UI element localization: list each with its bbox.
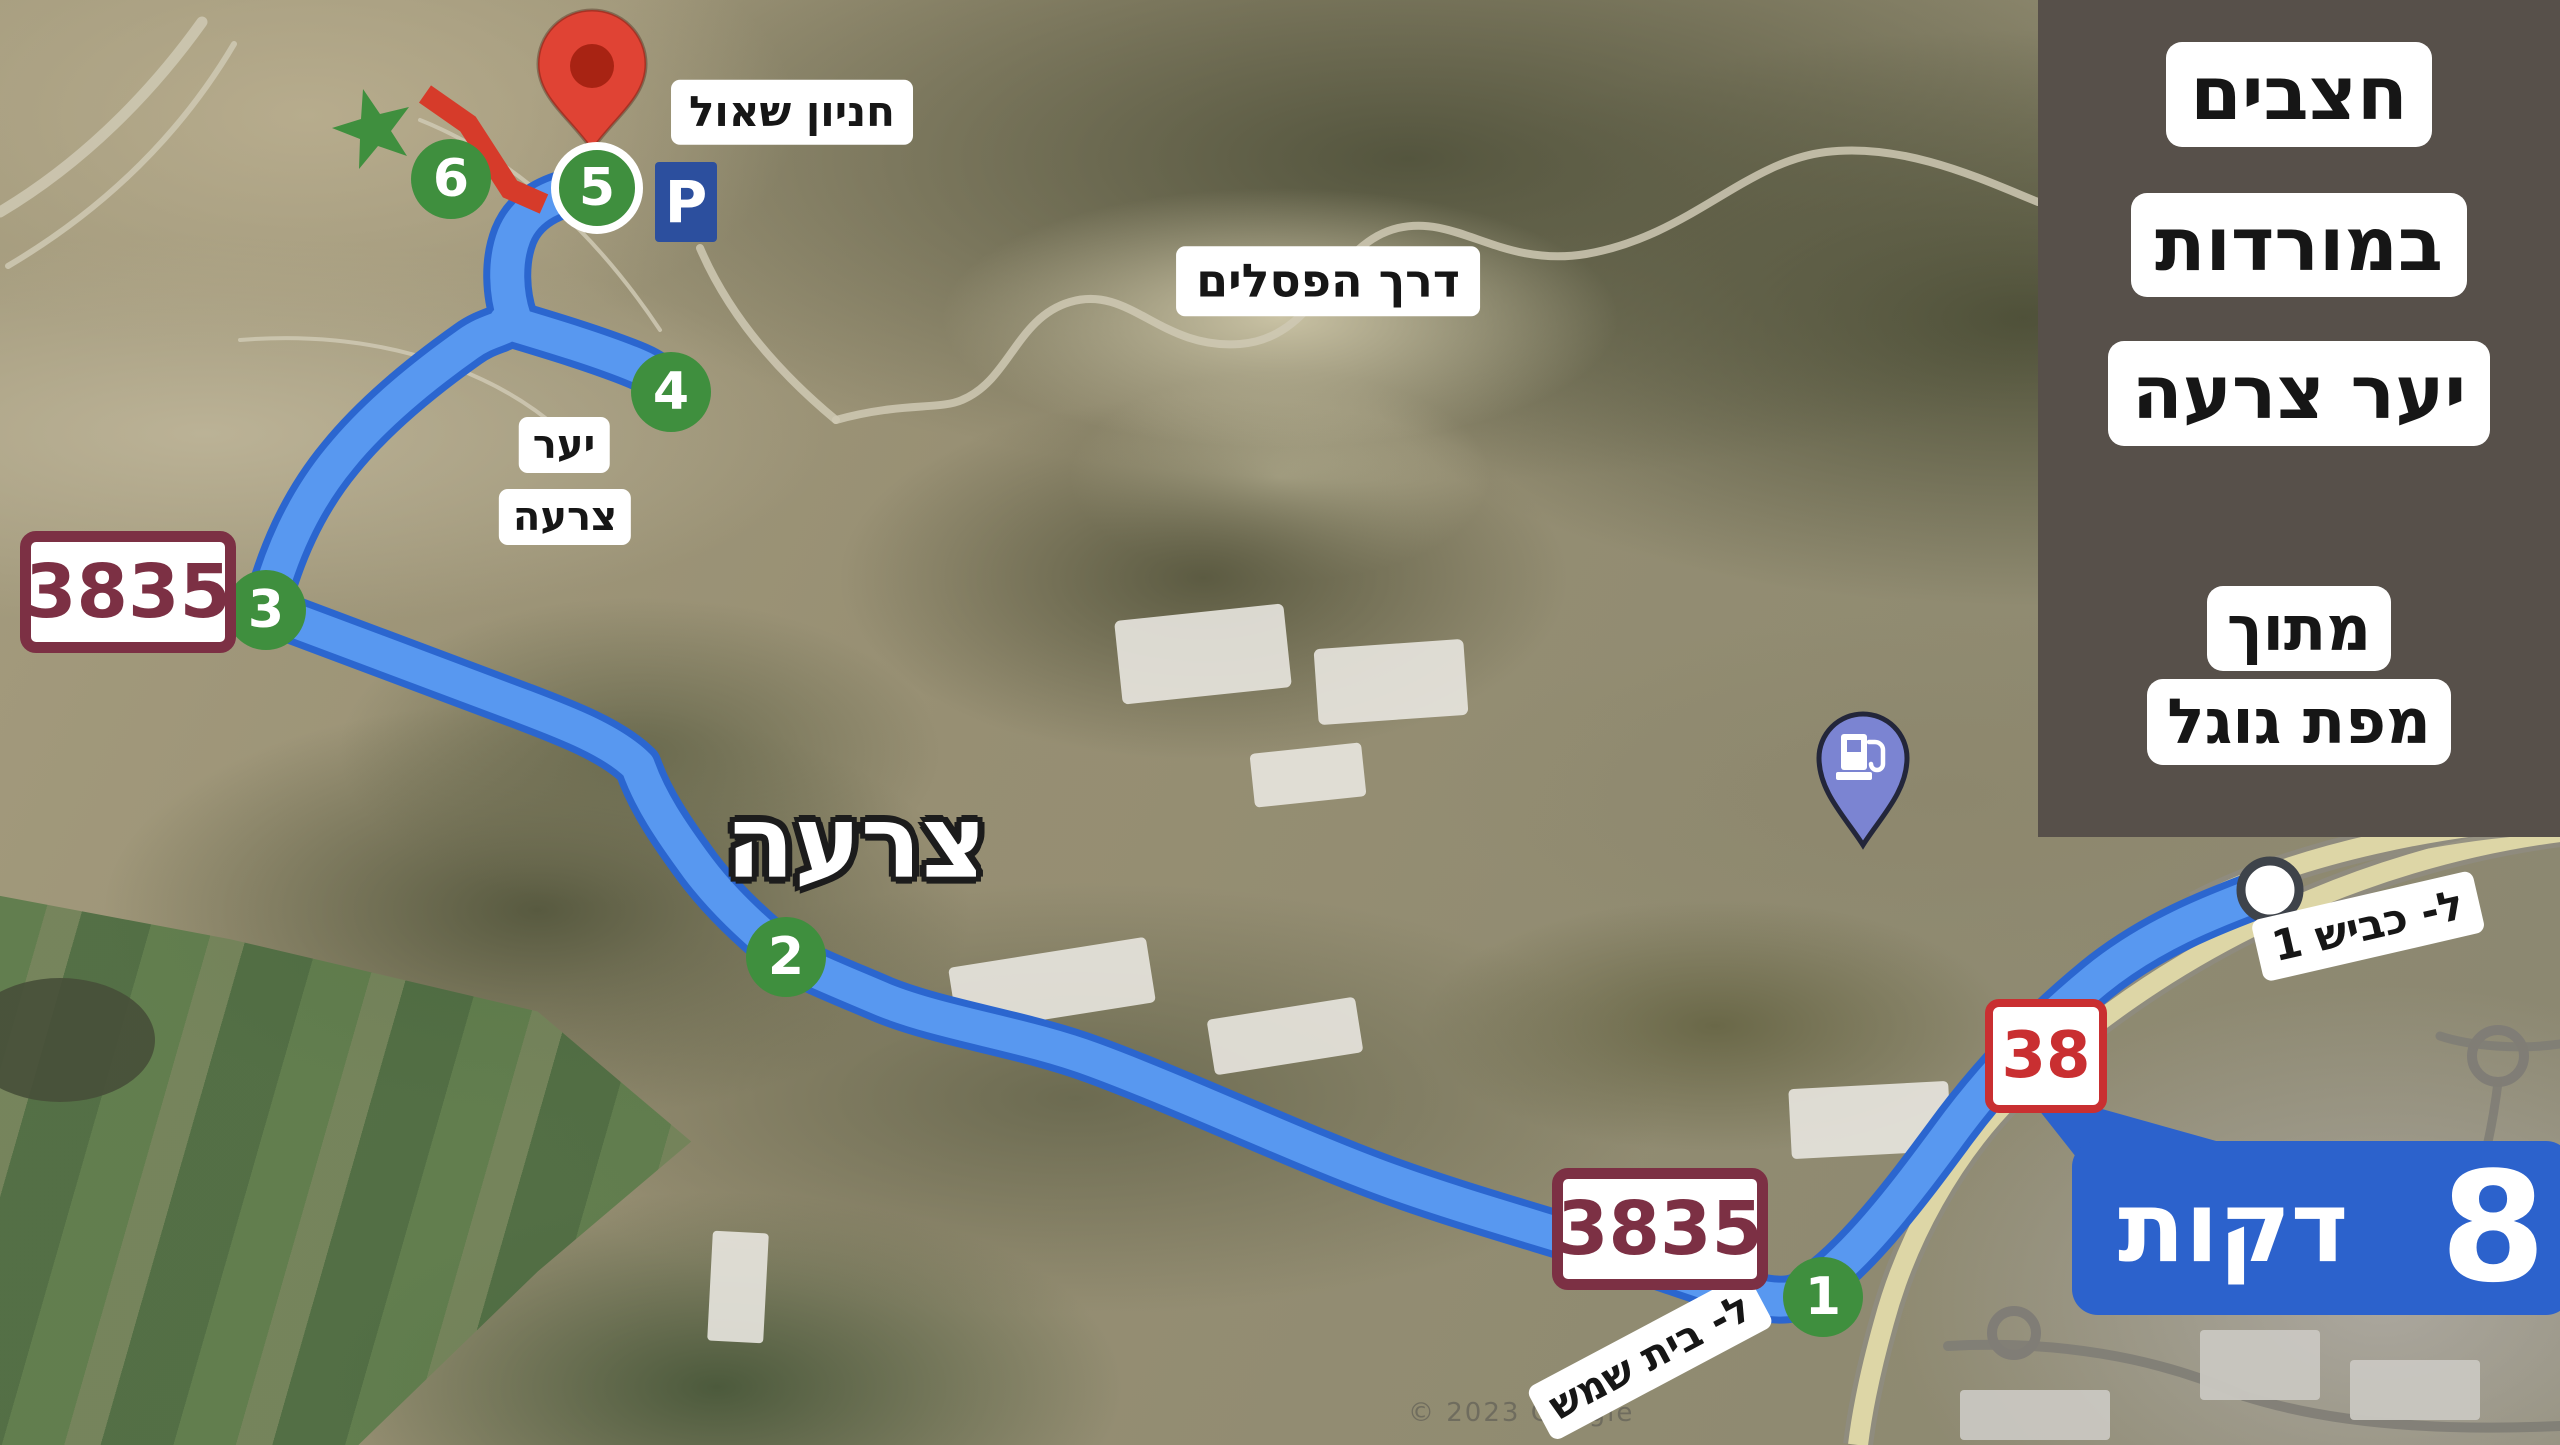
stop-number: 3 — [248, 580, 284, 640]
source-line-2: מפת גוגל — [2147, 679, 2451, 765]
duration-banner: 8 דקות — [2072, 1141, 2560, 1315]
stop-number: 1 — [1805, 1267, 1841, 1327]
duration-unit: דקות — [2118, 1179, 2348, 1277]
duration-value: 8 — [2440, 1152, 2546, 1304]
annotated-satellite-map: 1 2 3 4 5 6 3835 3835 38 P חניון שאול דר… — [0, 0, 2560, 1445]
route-stop-5: 5 — [551, 142, 643, 234]
title-line-2: במורדות — [2131, 193, 2467, 298]
source-line-1: מתוך — [2207, 586, 2391, 672]
shield-number: 3835 — [25, 549, 231, 635]
label-text: צרעה — [513, 492, 617, 542]
route-stop-4: 4 — [631, 352, 711, 432]
stop-number: 5 — [579, 158, 615, 218]
road-shield-3835-west: 3835 — [20, 531, 236, 653]
shield-number: 38 — [2001, 1019, 2090, 1093]
parking-letter: P — [665, 168, 708, 236]
source-text: מפת גוגל — [2167, 683, 2431, 761]
title-panel: חצבים במורדות יער צרעה מתוך מפת גוגל — [2038, 0, 2560, 837]
destination-red-pin-icon — [538, 10, 646, 150]
title-line-3: יער צרעה — [2108, 341, 2490, 446]
route-casing-forest — [266, 188, 596, 610]
road-shield-38: 38 — [1985, 999, 2107, 1113]
city-name: צרעה — [726, 784, 987, 901]
stop-number: 2 — [768, 927, 804, 987]
label-text: חניון שאול — [689, 86, 895, 139]
fuel-station-pin-icon — [1819, 714, 1907, 845]
label-text: דרך הפסלים — [1196, 252, 1460, 310]
label-shaul-parking: חניון שאול — [671, 80, 913, 145]
parking-sign-icon: P — [655, 162, 717, 242]
stop-number: 4 — [653, 362, 689, 422]
source-text: מתוך — [2227, 590, 2371, 668]
route-stop-6: 6 — [411, 139, 491, 219]
label-forest-word: יער — [519, 417, 610, 473]
title-text: יער צרעה — [2132, 347, 2466, 440]
route-stop-1: 1 — [1783, 1257, 1863, 1337]
route-start-circle — [2241, 861, 2299, 919]
shield-number: 3835 — [1557, 1186, 1763, 1272]
city-label-tzora: צרעה — [726, 784, 987, 901]
title-text: חצבים — [2190, 48, 2408, 141]
stop-number: 6 — [433, 149, 469, 209]
label-forest-name: צרעה — [499, 489, 631, 545]
label-sculptures-road: דרך הפסלים — [1176, 246, 1480, 316]
title-text: במורדות — [2155, 199, 2443, 292]
title-line-1: חצבים — [2166, 42, 2432, 147]
label-text: יער — [533, 420, 596, 470]
road-shield-3835-south: 3835 — [1552, 1168, 1768, 1290]
green-star-icon — [332, 89, 409, 169]
route — [266, 610, 2270, 1300]
route-stop-3: 3 — [226, 570, 306, 650]
route-stop-2: 2 — [746, 917, 826, 997]
